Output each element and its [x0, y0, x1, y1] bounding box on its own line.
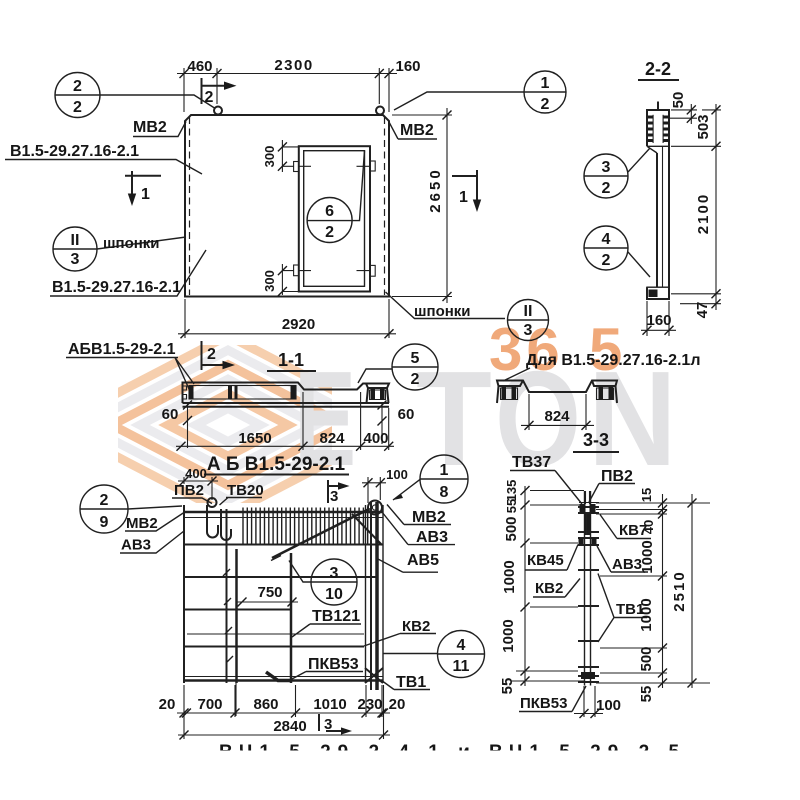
svg-text:1000: 1000 — [500, 619, 517, 652]
svg-text:МВ2: МВ2 — [412, 509, 446, 526]
svg-text:2920: 2920 — [282, 316, 315, 333]
svg-text:1-1: 1-1 — [278, 350, 304, 370]
svg-text:135: 135 — [504, 480, 519, 502]
svg-text:АВ3: АВ3 — [416, 529, 448, 546]
svg-text:ТВ121: ТВ121 — [312, 608, 360, 625]
svg-text:47: 47 — [694, 302, 711, 319]
svg-text:60: 60 — [162, 406, 179, 423]
svg-text:11: 11 — [453, 658, 470, 675]
svg-text:ТВ1: ТВ1 — [396, 674, 426, 691]
svg-text:3: 3 — [330, 488, 338, 505]
svg-text:503: 503 — [695, 114, 712, 139]
svg-text:ТВ20: ТВ20 — [227, 482, 264, 499]
svg-text:ПВ2: ПВ2 — [174, 482, 204, 499]
svg-text:400: 400 — [185, 466, 207, 481]
svg-text:АВ5: АВ5 — [407, 552, 439, 569]
svg-text:55: 55 — [499, 678, 516, 695]
svg-text:1: 1 — [459, 189, 468, 206]
svg-text:2: 2 — [205, 89, 214, 106]
svg-text:II: II — [71, 232, 80, 249]
svg-text:824: 824 — [544, 408, 570, 425]
svg-text:500: 500 — [503, 516, 520, 541]
svg-text:15: 15 — [639, 488, 654, 502]
svg-text:2300: 2300 — [274, 57, 313, 74]
svg-text:60: 60 — [398, 406, 415, 423]
svg-text:9: 9 — [100, 514, 109, 531]
svg-text:860: 860 — [253, 696, 278, 713]
svg-text:50: 50 — [670, 92, 687, 109]
svg-text:2510: 2510 — [671, 570, 688, 611]
svg-text:2100: 2100 — [695, 193, 712, 234]
svg-text:1650: 1650 — [238, 430, 271, 447]
svg-text:2: 2 — [73, 78, 82, 95]
svg-text:40: 40 — [641, 520, 656, 534]
svg-text:100: 100 — [386, 467, 408, 482]
svg-text:2: 2 — [602, 252, 611, 269]
svg-text:1010: 1010 — [313, 696, 346, 713]
svg-text:4: 4 — [602, 231, 611, 248]
svg-text:2: 2 — [541, 96, 550, 113]
svg-text:2: 2 — [602, 180, 611, 197]
svg-text:1000: 1000 — [639, 540, 656, 573]
svg-text:5: 5 — [411, 350, 420, 367]
svg-text:2: 2 — [100, 492, 109, 509]
svg-text:ПКВ53: ПКВ53 — [520, 695, 567, 712]
svg-text:750: 750 — [257, 584, 282, 601]
svg-text:8: 8 — [440, 484, 449, 501]
svg-text:300: 300 — [262, 270, 277, 292]
svg-text:ТВ37: ТВ37 — [512, 454, 551, 471]
svg-text:А Б В1.5-29-2.1: А Б В1.5-29-2.1 — [207, 454, 346, 475]
svg-text:55: 55 — [504, 499, 519, 513]
svg-text:КВ2: КВ2 — [402, 618, 430, 635]
svg-text:II: II — [524, 303, 533, 320]
svg-text:АВ3: АВ3 — [121, 537, 151, 554]
svg-text:КВ45: КВ45 — [527, 552, 564, 569]
svg-text:2: 2 — [207, 346, 216, 363]
svg-text:АБВ1.5-29-2.1: АБВ1.5-29-2.1 — [68, 341, 176, 358]
svg-text:400: 400 — [363, 430, 388, 447]
svg-text:460: 460 — [187, 58, 212, 75]
svg-text:100: 100 — [596, 697, 621, 714]
svg-text:6: 6 — [325, 203, 334, 220]
svg-text:3: 3 — [602, 159, 611, 176]
svg-text:5: 5 — [589, 316, 622, 383]
svg-text:МВ2: МВ2 — [133, 119, 167, 136]
svg-text:2: 2 — [325, 224, 334, 241]
svg-text:3: 3 — [524, 322, 533, 339]
svg-text:шпонки: шпонки — [103, 235, 160, 252]
svg-text:ПВ2: ПВ2 — [601, 468, 633, 485]
svg-text:В1.5-29.27.16-2.1: В1.5-29.27.16-2.1 — [52, 279, 181, 296]
svg-text:В1.5-29.27.16-2.1: В1.5-29.27.16-2.1 — [10, 143, 139, 160]
svg-text:1: 1 — [440, 462, 449, 479]
svg-text:2: 2 — [411, 371, 420, 388]
svg-text:2: 2 — [73, 99, 82, 116]
svg-text:300: 300 — [262, 146, 277, 168]
svg-text:500: 500 — [638, 646, 655, 671]
svg-text:АВ3: АВ3 — [612, 556, 642, 573]
svg-text:824: 824 — [319, 430, 345, 447]
svg-text:Для В1.5-29.27.16-2.1л: Для В1.5-29.27.16-2.1л — [526, 352, 700, 369]
svg-text:20: 20 — [159, 696, 176, 713]
svg-text:ПКВ53: ПКВ53 — [308, 656, 359, 673]
svg-text:2650: 2650 — [427, 167, 444, 212]
svg-text:20: 20 — [389, 696, 406, 713]
svg-text:1: 1 — [141, 186, 150, 203]
svg-text:1000: 1000 — [501, 560, 518, 593]
svg-text:шпонки: шпонки — [414, 303, 471, 320]
svg-text:10: 10 — [325, 586, 343, 603]
svg-text:МВ2: МВ2 — [126, 515, 158, 532]
svg-text:3: 3 — [71, 251, 80, 268]
svg-text:160: 160 — [646, 312, 671, 329]
svg-text:700: 700 — [197, 696, 222, 713]
svg-text:230: 230 — [357, 696, 382, 713]
svg-text:1000: 1000 — [638, 598, 655, 631]
svg-text:55: 55 — [638, 686, 655, 703]
svg-text:МВ2: МВ2 — [400, 122, 434, 139]
svg-text:3: 3 — [330, 565, 339, 582]
svg-text:3-3: 3-3 — [583, 430, 609, 450]
svg-text:КВ2: КВ2 — [535, 580, 563, 597]
svg-text:1: 1 — [541, 75, 550, 92]
svg-text:4: 4 — [457, 637, 466, 654]
svg-text:2840: 2840 — [273, 718, 306, 735]
svg-text:2-2: 2-2 — [645, 59, 671, 79]
svg-text:160: 160 — [395, 58, 420, 75]
